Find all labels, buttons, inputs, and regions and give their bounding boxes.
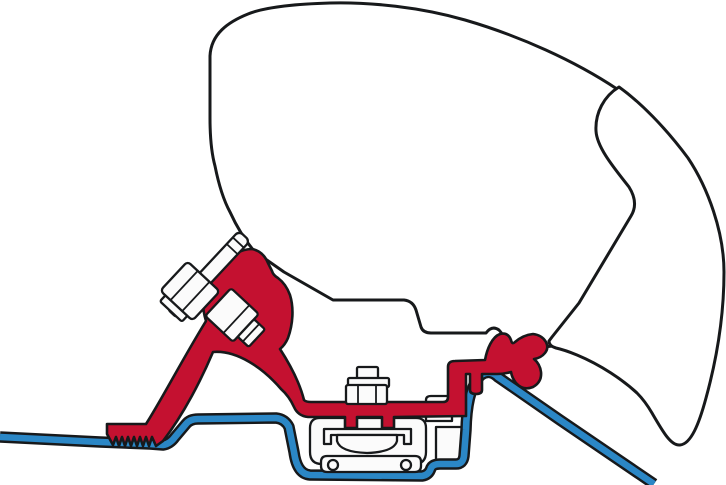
center-bolt-nut bbox=[346, 385, 387, 404]
rail-clamp bbox=[310, 418, 426, 472]
clamp-hole-right bbox=[401, 460, 411, 470]
awning-adapter-diagram bbox=[0, 0, 726, 485]
diagram-canvas bbox=[0, 0, 726, 485]
clamp-hole-left bbox=[328, 460, 338, 470]
center-bolt bbox=[346, 367, 389, 404]
clamp-pad bbox=[337, 435, 397, 453]
